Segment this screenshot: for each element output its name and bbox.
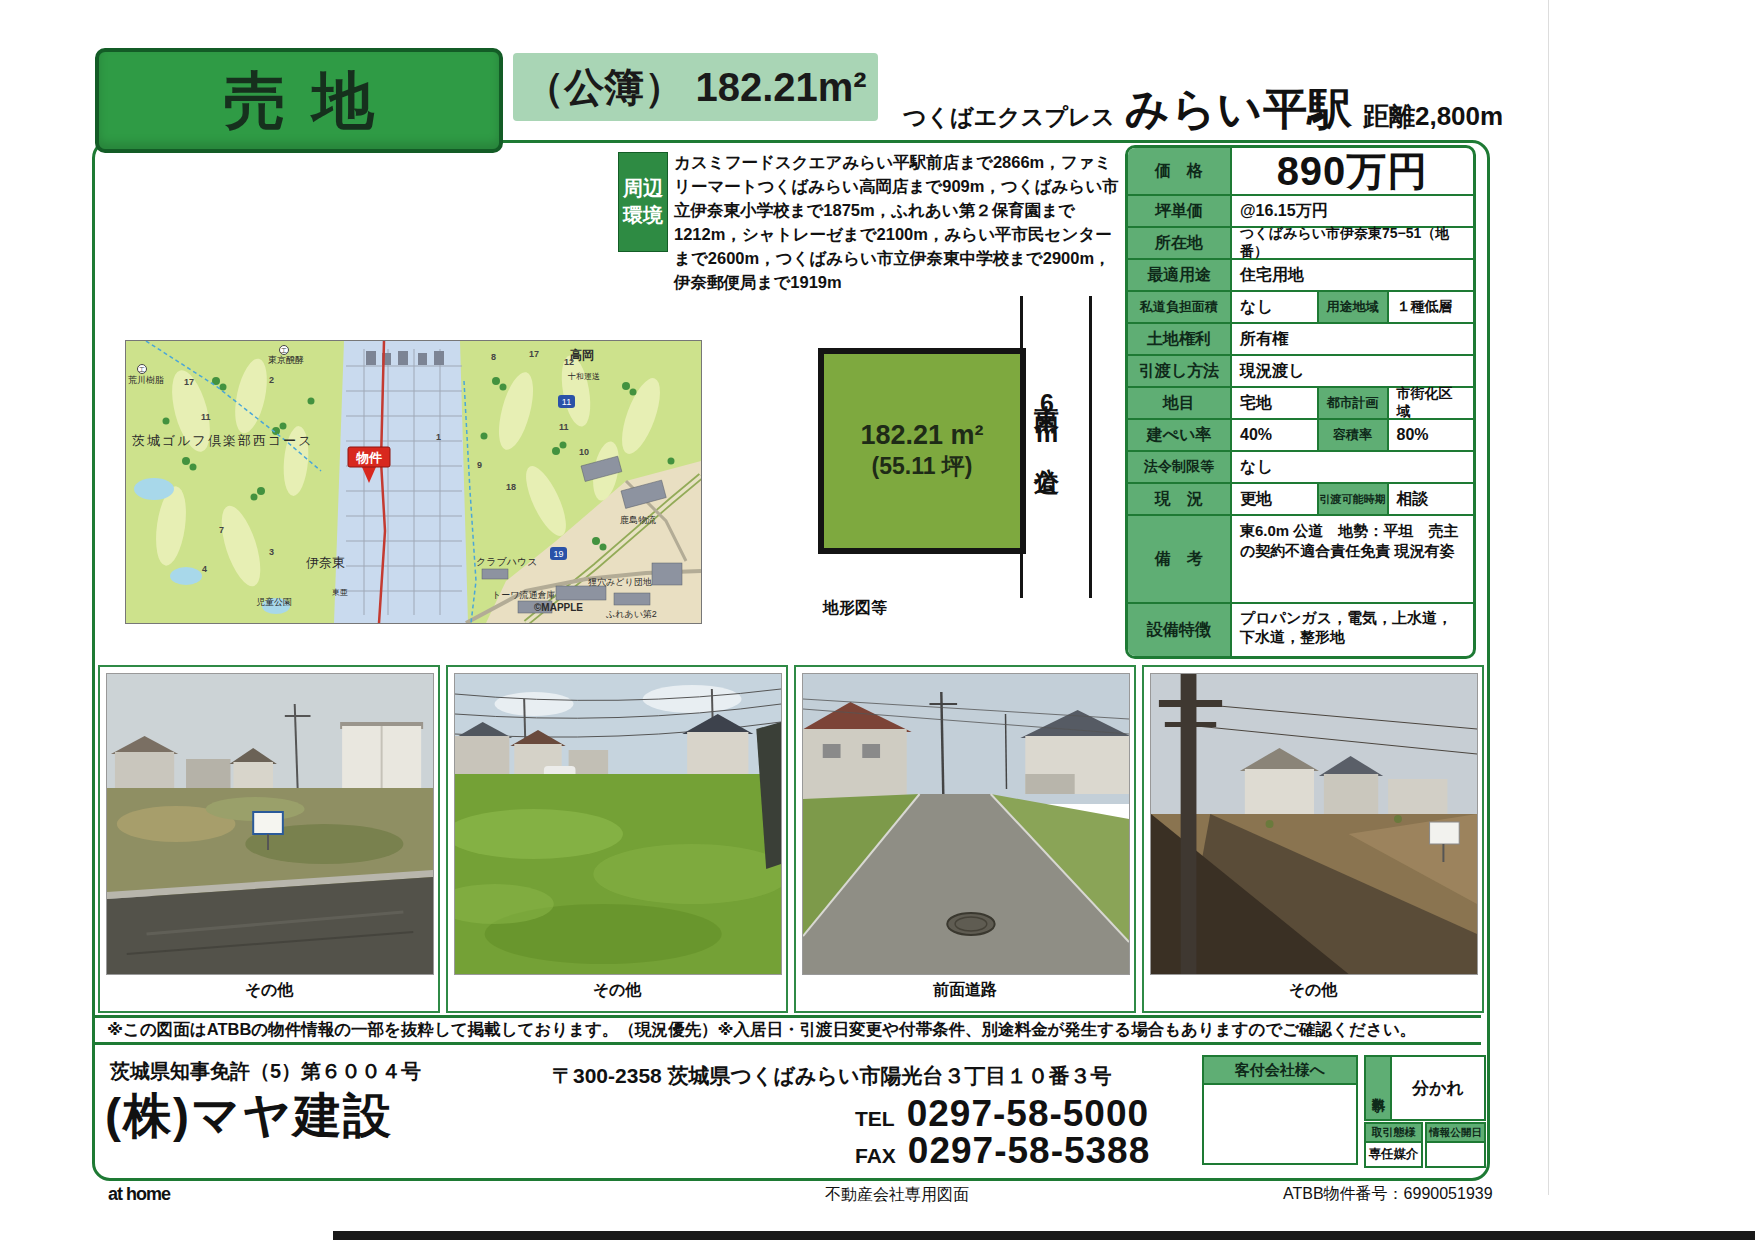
road-line-2 xyxy=(1089,296,1092,598)
svg-text:7: 7 xyxy=(219,525,224,535)
fax-row: FAX 0297-58-5388 xyxy=(855,1130,1150,1172)
table-row: 私道負担面積 なし 用途地域 １種低層 xyxy=(1128,292,1473,324)
land-rights-value: 所有権 xyxy=(1232,324,1473,354)
table-row: 備 考 東6.0m 公道 地勢：平坦 売主の契約不適合責任免責 現況有姿 xyxy=(1128,516,1473,604)
svg-text:8: 8 xyxy=(491,352,496,362)
handover-value: 現況渡し xyxy=(1232,356,1473,386)
photo-cell-4: その他 xyxy=(1142,665,1484,1013)
photo-cell-2: その他 xyxy=(446,665,788,1013)
bcr-label: 建ぺい率 xyxy=(1128,420,1232,450)
station-distance-text: 距離2,800m xyxy=(1363,99,1503,139)
company-address: 〒300-2358 茨城県つくばみらい市陽光台３丁目１０番３号 xyxy=(552,1062,1112,1090)
sale-type-banner: 売地 xyxy=(95,48,503,153)
legal-limits-label: 法令制限等 xyxy=(1128,452,1232,482)
svg-text:茨城ゴルフ倶楽部西コース: 茨城ゴルフ倶楽部西コース xyxy=(132,433,314,448)
far-label: 容積率 xyxy=(1317,420,1389,450)
station-name-text: みらい平駅 xyxy=(1125,80,1353,139)
station-info: つくばエクスプレス みらい平駅 距離2,800m xyxy=(903,80,1468,139)
svg-text:十和運送: 十和運送 xyxy=(567,372,600,381)
surroundings-text: カスミフードスクエアみらい平駅前店まで2866m，ファミリーマートつくばみらい高… xyxy=(674,150,1126,294)
delivery-label: 引渡可能時期 xyxy=(1317,484,1389,514)
agent-company-box-header: 客付会社様へ xyxy=(1204,1057,1356,1085)
notes-value: 東6.0m 公道 地勢：平坦 売主の契約不適合責任免責 現況有姿 xyxy=(1232,516,1473,602)
svg-text:荒川樹脂: 荒川樹脂 xyxy=(128,375,164,385)
svg-text:19: 19 xyxy=(553,549,563,559)
city-plan-label: 都市計画 xyxy=(1317,388,1389,418)
svg-text:17: 17 xyxy=(529,349,539,359)
svg-text:11: 11 xyxy=(559,422,569,432)
tel-number: 0297-58-5000 xyxy=(907,1093,1149,1135)
table-row: 現 況 更地 引渡可能時期 相談 xyxy=(1128,484,1473,516)
tel-row: TEL 0297-58-5000 xyxy=(855,1093,1149,1135)
table-row: 坪単価 @16.15万円 xyxy=(1128,196,1473,228)
road-line-1 xyxy=(1020,296,1023,598)
photo-3-caption: 前面道路 xyxy=(802,975,1128,1005)
atbb-number-text: ATBB物件番号：6990051939 xyxy=(1283,1184,1493,1205)
map-image: 工 工 荒川樹脂 東京醗酵 高岡 十和運送 茨城ゴルフ倶楽部西コース 伊奈東 東… xyxy=(126,341,701,623)
svg-text:東京醗酵: 東京醗酵 xyxy=(268,355,304,365)
photo-4-caption: その他 xyxy=(1150,975,1476,1005)
zoning-label: 用途地域 xyxy=(1317,292,1389,322)
fax-number: 0297-58-5388 xyxy=(908,1130,1150,1172)
publish-date-value xyxy=(1427,1143,1484,1166)
disclaimer-text: ※この図面はATBBの物件情報の一部を抜粋して掲載しております。（現況優先）※入… xyxy=(95,1015,1481,1045)
price-value: 890万円 xyxy=(1232,148,1473,194)
best-use-label: 最適用途 xyxy=(1128,260,1232,290)
table-row: 法令制限等 なし xyxy=(1128,452,1473,484)
transaction-type-value: 専任媒介 xyxy=(1366,1143,1421,1166)
table-row: 所在地 つくばみらい市伊奈東75−51（地番） xyxy=(1128,228,1473,260)
svg-text:9: 9 xyxy=(477,460,482,470)
svg-text:トーワ流通倉庫: トーワ流通倉庫 xyxy=(492,590,555,600)
svg-text:4: 4 xyxy=(202,564,207,574)
private-road-value: なし xyxy=(1232,292,1317,322)
plot-area-text: 182.21 m² xyxy=(860,420,983,451)
svg-text:伊奈東: 伊奈東 xyxy=(306,555,345,570)
agent-company-box: 客付会社様へ xyxy=(1202,1055,1358,1165)
city-plan-value: 市街化区域 xyxy=(1389,388,1474,418)
fax-label: FAX xyxy=(855,1144,896,1172)
status-label: 現 況 xyxy=(1128,484,1232,514)
unit-price-label: 坪単価 xyxy=(1128,196,1232,226)
best-use-value: 住宅用地 xyxy=(1232,260,1473,290)
svg-text:11: 11 xyxy=(201,412,211,422)
svg-text:12: 12 xyxy=(564,357,574,367)
features-value: プロパンガス，電気，上水道，下水道，整形地 xyxy=(1232,604,1473,656)
svg-text:18: 18 xyxy=(506,482,516,492)
map-credit: ©MAPPLE xyxy=(534,602,583,613)
publish-date-label: 情報公開日 xyxy=(1427,1124,1484,1143)
status-value: 更地 xyxy=(1232,484,1317,514)
flyer-page: 売地 （公簿） 182.21m² つくばエクスプレス みらい平駅 距離2,800… xyxy=(0,0,1755,1240)
photo-cell-1: その他 xyxy=(98,665,440,1013)
svg-text:3: 3 xyxy=(269,547,274,557)
svg-text:鹿島物流: 鹿島物流 xyxy=(620,515,656,525)
photo-1-caption: その他 xyxy=(106,975,432,1005)
photo-cell-3: 前面道路 xyxy=(794,665,1136,1013)
private-road-label: 私道負担面積 xyxy=(1128,292,1232,322)
delivery-value: 相談 xyxy=(1389,484,1474,514)
svg-text:児童公園: 児童公園 xyxy=(256,597,292,607)
notes-label: 備 考 xyxy=(1128,516,1232,602)
fee-value: 分かれ xyxy=(1392,1057,1484,1119)
svg-text:10: 10 xyxy=(579,447,589,457)
fee-box: 手数料 分かれ xyxy=(1364,1055,1486,1121)
document-type-text: 不動産会社専用図面 xyxy=(825,1185,969,1206)
photo-3-image xyxy=(802,673,1130,975)
legal-limits-value: なし xyxy=(1232,452,1473,482)
transaction-type-box: 取引態様 専任媒介 xyxy=(1364,1122,1423,1168)
photo-row: その他 その他 xyxy=(98,665,1484,1013)
svg-text:クラブハウス: クラブハウス xyxy=(476,556,537,567)
table-row: 地目 宅地 都市計画 市街化区域 xyxy=(1128,388,1473,420)
location-label: 所在地 xyxy=(1128,228,1232,258)
svg-text:ふれあい第2: ふれあい第2 xyxy=(605,609,657,619)
handover-label: 引渡し方法 xyxy=(1128,356,1232,386)
land-category-label: 地目 xyxy=(1128,388,1232,418)
scan-paper-edge xyxy=(1548,0,1549,1195)
zoning-value: １種低層 xyxy=(1389,292,1474,322)
fee-label: 手数料 xyxy=(1366,1057,1392,1119)
bcr-value: 40% xyxy=(1232,420,1317,450)
transaction-type-label: 取引態様 xyxy=(1366,1124,1421,1143)
svg-text:1: 1 xyxy=(436,432,441,442)
photo-4-image xyxy=(1150,673,1478,975)
location-value: つくばみらい市伊奈東75−51（地番） xyxy=(1232,228,1473,258)
company-name: (株)マヤ建設 xyxy=(105,1084,393,1148)
unit-price-value: @16.15万円 xyxy=(1232,196,1473,226)
svg-text:東亜: 東亜 xyxy=(332,588,348,597)
far-value: 80% xyxy=(1389,420,1474,450)
surroundings-label: 周辺 環境 xyxy=(618,152,668,252)
table-row: 建ぺい率 40% 容積率 80% xyxy=(1128,420,1473,452)
svg-text:11: 11 xyxy=(562,397,571,407)
land-category-value: 宅地 xyxy=(1232,388,1317,418)
svg-text:工: 工 xyxy=(139,366,145,373)
plot-diagram: 182.21 m² (55.11 坪) xyxy=(818,348,1026,554)
land-rights-label: 土地権利 xyxy=(1128,324,1232,354)
table-row: 最適用途 住宅用地 xyxy=(1128,260,1473,292)
rail-line-text: つくばエクスプレス xyxy=(903,102,1115,139)
svg-text:17: 17 xyxy=(184,377,194,387)
plot-tsubo-text: (55.11 坪) xyxy=(872,451,973,482)
location-map: 工 工 荒川樹脂 東京醗酵 高岡 十和運送 茨城ゴルフ倶楽部西コース 伊奈東 東… xyxy=(125,340,702,624)
features-label: 設備特徴 xyxy=(1128,604,1232,656)
photo-2-image xyxy=(454,673,782,975)
table-row: 価 格 890万円 xyxy=(1128,148,1473,196)
price-label: 価 格 xyxy=(1128,148,1232,194)
property-details-table: 価 格 890万円 坪単価 @16.15万円 所在地 つくばみらい市伊奈東75−… xyxy=(1125,145,1476,659)
table-row: 設備特徴 プロパンガス，電気，上水道，下水道，整形地 xyxy=(1128,604,1473,656)
table-row: 引渡し方法 現況渡し xyxy=(1128,356,1473,388)
table-row: 土地権利 所有権 xyxy=(1128,324,1473,356)
surroundings-label-line2: 環境 xyxy=(623,202,663,229)
svg-text:工: 工 xyxy=(281,347,287,354)
registered-area-banner: （公簿） 182.21m² xyxy=(513,53,878,121)
sale-type-text: 売地 xyxy=(198,59,400,143)
scan-black-bar xyxy=(333,1231,1755,1240)
road-label: 東南6m公道 xyxy=(1031,385,1064,555)
publish-date-box: 情報公開日 xyxy=(1425,1122,1486,1168)
athome-logo: at home xyxy=(108,1184,170,1205)
svg-text:狸穴みどり団地: 狸穴みどり団地 xyxy=(588,577,652,587)
svg-text:2: 2 xyxy=(269,375,274,385)
photo-1-image xyxy=(106,673,434,975)
photo-2-caption: その他 xyxy=(454,975,780,1005)
svg-text:物件: 物件 xyxy=(355,450,382,465)
surroundings-label-line1: 周辺 xyxy=(623,175,663,202)
plot-caption: 地形図等 xyxy=(725,598,985,619)
license-text: 茨城県知事免許（5）第６００４号 xyxy=(110,1058,421,1085)
registered-area-text: （公簿） 182.21m² xyxy=(524,60,866,115)
